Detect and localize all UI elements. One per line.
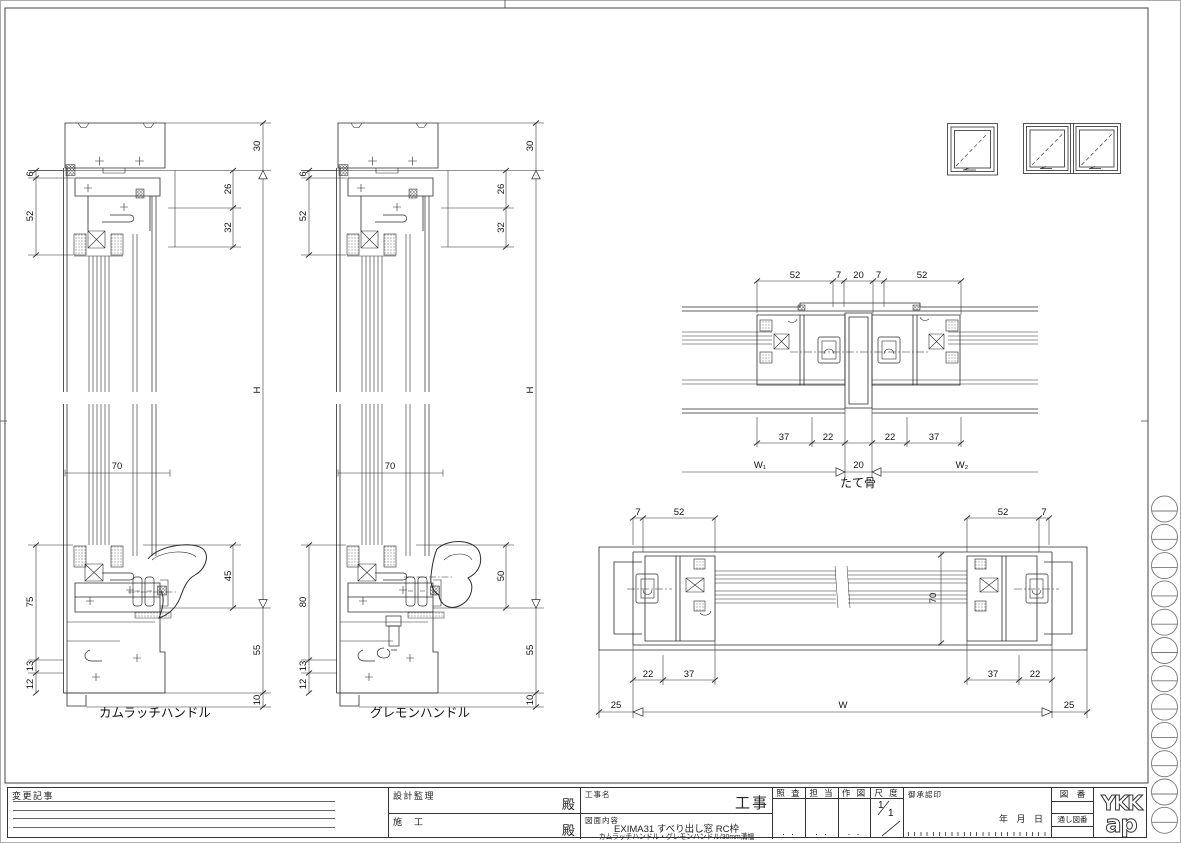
check-column: 照 査 . . bbox=[773, 788, 806, 837]
dim-label: 32 bbox=[223, 222, 234, 233]
dim-label: 55 bbox=[252, 645, 263, 656]
dim-label: W₂ bbox=[956, 460, 969, 471]
project-name-label: 工事名 bbox=[585, 789, 611, 800]
charge-column: 担 当 . . bbox=[806, 788, 839, 837]
dim-label: 52 bbox=[25, 211, 36, 222]
draft-dots: . . bbox=[839, 827, 870, 837]
dim-label: 22 bbox=[1030, 669, 1041, 680]
dim-label: 25 bbox=[1064, 700, 1075, 711]
cad-drawing: 6 52 75 13 12 30 26 32 H 45 55 10 70 カムラ… bbox=[0, 0, 1181, 843]
dim-label: 75 bbox=[25, 597, 36, 608]
dim-label: 6 bbox=[25, 171, 36, 176]
logo-text-ap: ap bbox=[1105, 810, 1137, 837]
project-name-value: 工事 bbox=[735, 792, 769, 813]
section-cam-latch: 6 52 75 13 12 30 26 32 H 45 55 10 70 カムラ… bbox=[25, 121, 271, 721]
scale-numerator: 1 bbox=[878, 800, 884, 811]
dim-label: 37 bbox=[779, 432, 790, 443]
dim-label: 50 bbox=[496, 571, 507, 582]
dim-label: 10 bbox=[252, 695, 263, 706]
dim-label: 22 bbox=[885, 432, 896, 443]
dim-label: 30 bbox=[525, 141, 536, 152]
change-record-line bbox=[13, 801, 335, 802]
dim-label: 37 bbox=[988, 669, 999, 680]
window-elevation-icons bbox=[948, 124, 1121, 176]
single-window-icon bbox=[948, 124, 998, 176]
design-supervision-cell: 設計監理 殿 bbox=[389, 788, 581, 814]
dim-label: 25 bbox=[611, 700, 622, 711]
dim-label: 70 bbox=[385, 461, 396, 472]
dim-label: 20 bbox=[853, 460, 864, 471]
charge-label: 担 当 bbox=[806, 788, 838, 799]
dim-label: 20 bbox=[853, 270, 864, 281]
charge-dots: . . bbox=[806, 827, 838, 837]
construction-cell: 施 工 殿 bbox=[389, 814, 581, 840]
scale-column: 尺 度 1 1 bbox=[871, 788, 904, 837]
draft-column: 作 図 . . bbox=[839, 788, 871, 837]
dono-suffix: 殿 bbox=[562, 794, 575, 813]
dim-label: 55 bbox=[525, 645, 536, 656]
figure-number-cell: 図 番 通し図番 bbox=[1052, 788, 1094, 837]
dim-label: 80 bbox=[298, 597, 309, 608]
detail-label: たて骨 bbox=[840, 476, 876, 490]
dim-label: 52 bbox=[998, 507, 1009, 518]
figure-number-label: 図 番 bbox=[1052, 788, 1093, 802]
double-window-icon bbox=[1024, 124, 1121, 174]
detail-plan-section: 7 52 52 7 70 22 37 37 22 25 W 25 bbox=[596, 507, 1090, 718]
dim-label: 70 bbox=[112, 461, 123, 472]
dim-label: H bbox=[525, 386, 536, 393]
section-gremon: 6 52 80 13 12 30 26 32 H 50 55 10 70 グレモ… bbox=[298, 121, 544, 721]
dim-label: 6 bbox=[298, 171, 309, 176]
section-label: グレモンハンドル bbox=[370, 706, 470, 720]
approval-tick-marks bbox=[908, 832, 1047, 836]
dim-label: 22 bbox=[643, 669, 654, 680]
scale-value: 1 1 bbox=[871, 798, 904, 837]
dim-label: W₁ bbox=[754, 460, 766, 471]
change-record-line bbox=[13, 827, 335, 828]
date-label: 年 月 日 bbox=[999, 812, 1046, 825]
change-record-cell: 変更記事 bbox=[8, 788, 389, 837]
ykk-ap-logo: YKK ap bbox=[1094, 788, 1148, 837]
drawing-content-subtitle: カムラッチハンドル・グレモンハンドル/30mm溝幅 bbox=[591, 831, 763, 842]
drawing-sheet: 6 52 75 13 12 30 26 32 H 45 55 10 70 カムラ… bbox=[0, 0, 1181, 843]
approval-stamp-cell: 御承認印 年 月 日 bbox=[904, 788, 1052, 837]
dim-label: 37 bbox=[929, 432, 940, 443]
dim-label: 26 bbox=[496, 184, 507, 195]
dim-label: 13 bbox=[298, 661, 309, 672]
drawing-content-cell: 図面内容 EXIMA31 すべり出し窓 RC枠 カムラッチハンドル・グレモンハン… bbox=[581, 814, 773, 840]
dono-suffix: 殿 bbox=[562, 820, 575, 839]
check-label: 照 査 bbox=[773, 788, 805, 799]
construction-label: 施 工 bbox=[393, 815, 425, 828]
dim-label: 10 bbox=[525, 695, 536, 706]
dim-label: 32 bbox=[496, 222, 507, 233]
dim-label: 70 bbox=[928, 593, 939, 604]
dim-label: 7 bbox=[635, 507, 640, 518]
dim-label: 37 bbox=[684, 669, 695, 680]
dim-label: W bbox=[839, 700, 848, 711]
dim-label: 52 bbox=[298, 211, 309, 222]
project-name-cell: 工事名 工事 bbox=[581, 788, 773, 814]
dim-label: 7 bbox=[876, 270, 881, 281]
dim-label: 7 bbox=[1041, 507, 1046, 518]
section-label: カムラッチハンドル bbox=[99, 706, 211, 720]
dim-label: 7 bbox=[836, 270, 841, 281]
dim-label: 52 bbox=[674, 507, 685, 518]
title-block: 変更記事 設計監理 殿 施 工 殿 工事名 工事 図面内容 EXIMA31 すべ… bbox=[7, 787, 1147, 838]
detail-mullion-section: 52 7 20 7 52 37 22 22 37 W₁ 20 W₂ たて骨 bbox=[682, 270, 1038, 490]
change-record-line bbox=[13, 818, 335, 819]
dim-label: 26 bbox=[223, 184, 234, 195]
dim-label: H bbox=[252, 386, 263, 393]
check-dots: . . bbox=[773, 827, 805, 837]
dim-label: 52 bbox=[790, 270, 801, 281]
dim-label: 12 bbox=[298, 679, 309, 690]
dim-label: 30 bbox=[252, 141, 263, 152]
scale-denominator: 1 bbox=[888, 808, 894, 819]
dim-label: 52 bbox=[917, 270, 928, 281]
dim-label: 12 bbox=[25, 679, 36, 690]
serial-number-label: 通し図番 bbox=[1052, 813, 1093, 827]
dim-label: 13 bbox=[25, 661, 36, 672]
approval-stamp-label: 御承認印 bbox=[908, 789, 942, 800]
dim-label: 22 bbox=[823, 432, 834, 443]
change-record-line bbox=[13, 810, 335, 811]
design-supervision-label: 設計監理 bbox=[393, 789, 435, 802]
draft-label: 作 図 bbox=[839, 788, 870, 799]
edge-circle-marks bbox=[1152, 496, 1178, 833]
dim-label: 45 bbox=[223, 571, 234, 582]
